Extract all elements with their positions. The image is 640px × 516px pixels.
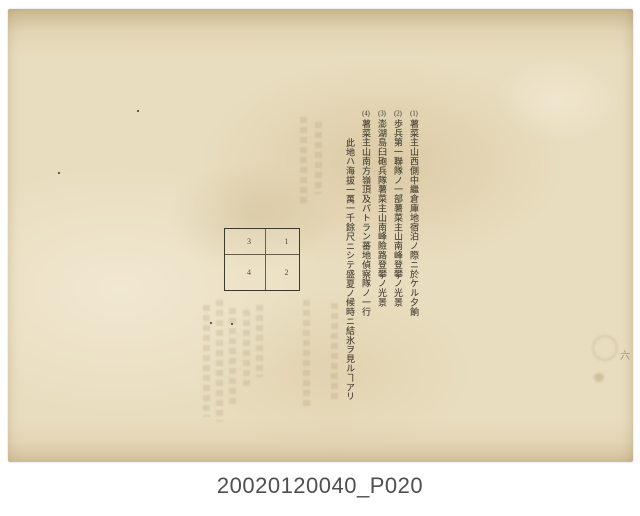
caption-column-2: (2)歩兵第一聯隊ノ一部薯菜主山南峰登攀ノ光景 [390, 110, 406, 425]
paper-speck [210, 322, 212, 324]
caption-text: 薯菜主山西側中繼倉庫地宿泊ノ際ニ於ケル夕餉 [409, 119, 419, 316]
scan-viewer: (1)薯菜主山西側中繼倉庫地宿泊ノ際ニ於ケル夕餉 (2)歩兵第一聯隊ノ一部薯菜主… [0, 0, 640, 516]
table-cell: 2 [266, 255, 299, 290]
ink-smudge [594, 373, 604, 382]
caption-number: (3) [378, 110, 386, 119]
table-cell: 1 [266, 229, 299, 255]
caption-number: (4) [362, 110, 370, 119]
photo-caption-list: (1)薯菜主山西側中繼倉庫地宿泊ノ際ニ於ケル夕餉 (2)歩兵第一聯隊ノ一部薯菜主… [338, 110, 422, 425]
plate-layout-table: 3 1 4 2 [224, 228, 300, 291]
bleedthrough-column [256, 305, 263, 377]
caption-column-3: (3)澎湖島臼砲兵隊薯菜主山南峰險路登攀ノ光景 [374, 110, 390, 425]
bleedthrough-column [300, 117, 307, 203]
caption-text: 澎湖島臼砲兵隊薯菜主山南峰險路登攀ノ光景 [377, 119, 387, 307]
caption-column-note: 此地ハ海拔一萬一千餘尺ニシテ盛夏ノ候時ニ結氷ヲ見ルヿアリ [342, 110, 358, 425]
scanned-page: (1)薯菜主山西側中繼倉庫地宿泊ノ際ニ於ケル夕餉 (2)歩兵第一聯隊ノ一部薯菜主… [8, 9, 633, 462]
caption-text: 薯菜主山南方嶺頂及パトラン蕃地偵察隊ノ一行 [361, 119, 371, 316]
bleedthrough-column [315, 122, 322, 194]
caption-text: 此地ハ海拔一萬一千餘尺ニシテ盛夏ノ候時ニ結氷ヲ見ルヿアリ [345, 138, 355, 401]
paper-watermark [592, 335, 618, 361]
bleedthrough-column [331, 303, 338, 403]
table-cell: 3 [225, 229, 266, 255]
table-cell: 4 [225, 255, 266, 290]
bleedthrough-column [203, 305, 210, 417]
paper-speck [58, 172, 60, 174]
caption-text: 歩兵第一聯隊ノ一部薯菜主山南峰登攀ノ光景 [393, 119, 403, 307]
caption-number: (1) [410, 110, 418, 119]
bleedthrough-column [303, 300, 310, 410]
bleedthrough-column [243, 310, 250, 390]
archive-id-caption: 20020120040_P020 [0, 473, 640, 499]
paper-speck [137, 110, 139, 112]
margin-page-mark: 六 [620, 347, 630, 362]
caption-number: (2) [394, 110, 402, 119]
bleedthrough-column [216, 300, 223, 422]
paper-speck [231, 323, 233, 325]
caption-column-1: (1)薯菜主山西側中繼倉庫地宿泊ノ際ニ於ケル夕餉 [406, 110, 422, 425]
caption-column-4: (4)薯菜主山南方嶺頂及パトラン蕃地偵察隊ノ一行 [358, 110, 374, 425]
